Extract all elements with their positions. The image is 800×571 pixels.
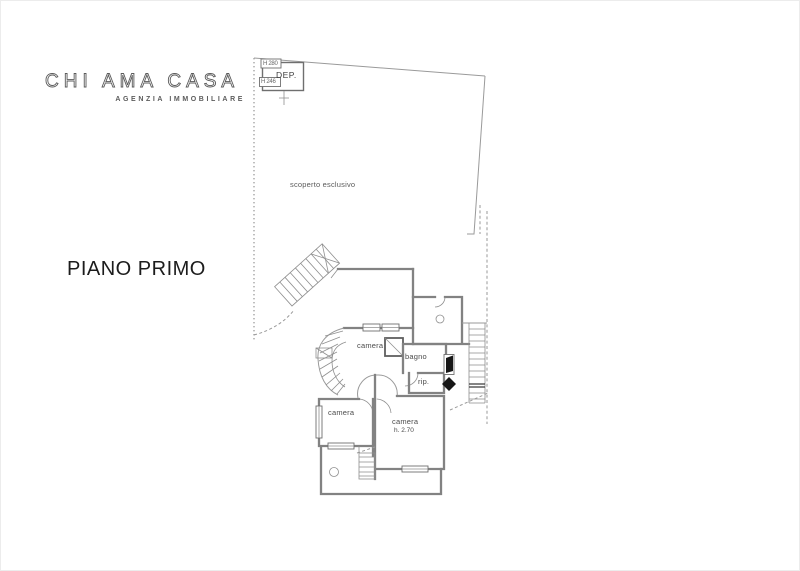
agency-logo-title: CHI AMA CASA [45, 71, 245, 93]
closet-label: rip. [418, 378, 429, 386]
shaft-block [385, 338, 403, 356]
bedroom-right-height-label: h. 2.70 [394, 428, 414, 435]
bedroom-left-label: camera [328, 409, 354, 417]
right-stair [450, 323, 488, 410]
spiral-stair [316, 328, 346, 395]
bedroom-upper-label: camera [357, 342, 383, 350]
agency-logo: CHI AMA CASA AGENZIA IMMOBILIARE [45, 71, 245, 103]
floor-title: PIANO PRIMO [67, 258, 206, 281]
north-wall [344, 324, 413, 331]
hall-partition [358, 375, 398, 413]
storage-height-top-label: H 280 [263, 61, 278, 67]
storage-height-bottom-label: H 246 [261, 79, 276, 85]
terrace-parapet [338, 269, 413, 344]
outdoor-area-label: scoperto esclusivo [290, 181, 355, 189]
bathroom-label: bagno [405, 353, 427, 361]
floorplan-page: CHI AMA CASA AGENZIA IMMOBILIARE PIANO P… [0, 0, 800, 571]
external-stair [275, 244, 340, 306]
door-markers [442, 355, 456, 392]
bedroom-right-label: camera [392, 418, 418, 426]
upper-right-room [413, 297, 469, 344]
bedroom-right-walls [375, 396, 444, 479]
agency-logo-subtitle: AGENZIA IMMOBILIARE [45, 96, 245, 103]
storage-label: DEP. [276, 71, 297, 80]
